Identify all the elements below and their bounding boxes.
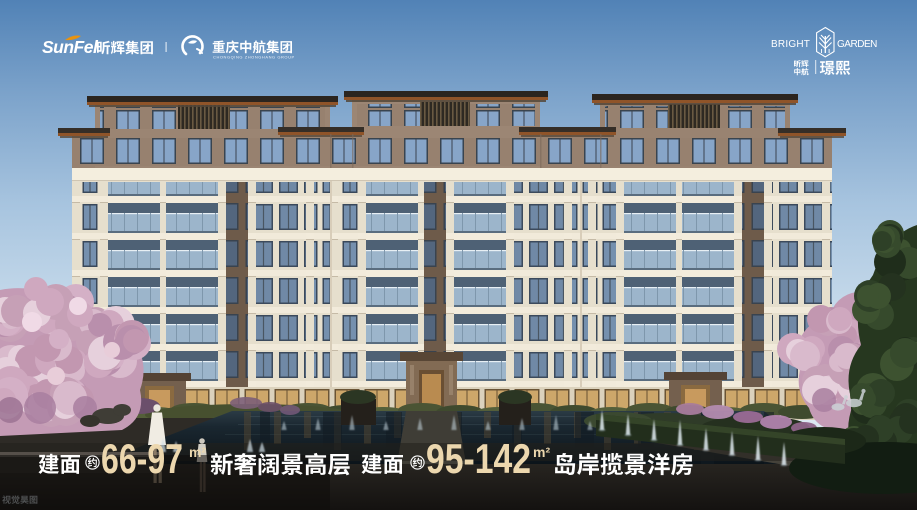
svg-text:m²: m² (533, 444, 550, 460)
svg-text:CHONGQING ZHONGHANG GROUP: CHONGQING ZHONGHANG GROUP (213, 55, 295, 60)
svg-text:BRIGHT: BRIGHT (771, 39, 812, 50)
svg-text:m²: m² (189, 444, 206, 460)
svg-text:95-142: 95-142 (426, 435, 531, 482)
svg-text:66-97: 66-97 (101, 435, 183, 482)
svg-text:GARDEN: GARDEN (837, 39, 879, 50)
